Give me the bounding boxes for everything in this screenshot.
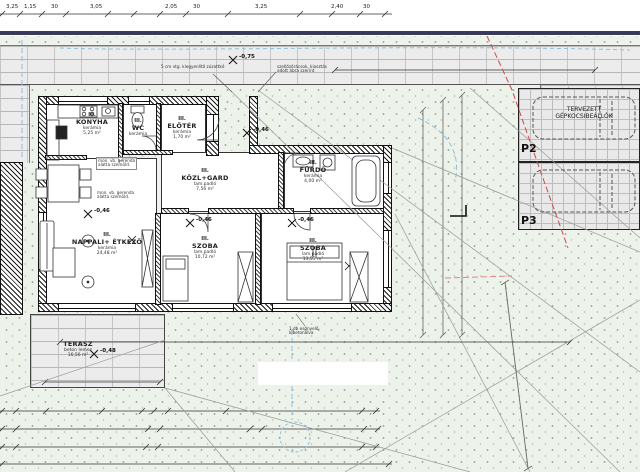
wall-top-rear [249,145,392,154]
note-beam-2: mon. vb. gerenda alatta szemöld. [96,190,135,201]
wall-furdo-left [278,152,284,212]
neighbor-wall [0,162,23,315]
window-furdo [383,162,392,194]
level-szoba2: -0,46 [298,217,314,223]
room-name: KONYHA [62,118,122,126]
note-line: adott ábra szerint [277,69,327,74]
room-name: KÖZL+GARD [170,174,240,182]
level-street: -0,75 [239,54,255,60]
wall-nappali-szoba1 [155,213,161,305]
label-szoba-2: III. SZOBA lam.padló 13,53 m² [288,238,338,262]
dim-top-6: 3,25 [255,4,267,10]
terrace-door [58,303,136,312]
window-szoba2 [272,303,352,312]
dim-top-3: 3,05 [90,4,102,10]
parking-title: TERVEZETT GÉPKOCSIBEÁLLÓK [528,106,640,120]
room-area: 13,53 m² [288,257,338,262]
stall-id-p2: P2 [521,142,537,155]
note-line: kibetonálva [289,331,320,336]
wall-konyha-bottom [45,155,87,160]
note-vents: szellőzőrácsok, kiosztás adott ábra szer… [276,64,328,75]
dim-top-2: 30 [51,4,58,10]
note-beam-1: mon. vb. gerenda alatta szemöld. [96,157,137,170]
room-name: ELŐTÉR [160,122,204,130]
room-floor: kerámia [122,132,154,137]
dim-top-4: 2,05 [165,4,177,10]
label-nappali-etkezo: III. NAPPALI+ ÉTKEZŐ kerámia 24,48 m² [57,232,157,256]
room-area: 7,56 m² [170,187,240,192]
label-terasz: TERASZ beton lemez 16,56 m² [48,340,108,358]
room-name: SZOBA [288,244,338,252]
floor-plan-canvas: 3,25 1,15 30 3,05 2,05 30 3,25 2,40 30 2… [0,0,640,472]
sidewalk-left-strip [0,85,30,163]
window-nappali-left [38,212,47,270]
wall-porch-right [249,96,258,148]
parking-title-line2: GÉPKOCSIBEÁLLÓK [528,113,640,120]
window-konyha [58,96,108,105]
room-area: 10,72 m² [180,255,230,260]
room-name: FÜRDŐ [288,166,338,174]
label-kozl-gard: III. KÖZL+GARD lam.padló 7,56 m² [170,168,240,192]
entry-porch [219,103,250,151]
dimension-chain-top [0,11,392,17]
room-name: WC [122,124,154,132]
wall-szoba1-szoba2 [255,213,261,305]
room-name: TERASZ [48,340,108,348]
dim-top-5: 30 [193,4,200,10]
label-wc: III. WC kerámia [122,118,154,137]
wall-kozl-szoba1-b [208,208,294,214]
level-nappali: -0,46 [94,208,110,214]
dim-top-0: 3,25 [6,4,18,10]
window-szoba1 [172,303,234,312]
label-eloter: III. ELŐTÉR kerámia 1,70 m² [160,116,204,140]
note-leveling: 5 cm vtg. kiegyenlítő zúzottkő [160,64,225,70]
label-furdo: III. FÜRDŐ kerámia 4,00 m² [288,160,338,184]
note-line: alatta szemöld. [97,195,134,200]
window-wc [128,96,150,105]
note-line: 5 cm vtg. kiegyenlítő zúzottkő [161,65,224,70]
entry-door-gap [206,114,219,142]
room-area: 16,56 m² [48,353,108,358]
label-szoba-1: III. SZOBA lam.padló 10,72 m² [180,236,230,260]
wall-kozl-szoba1-a [161,208,189,214]
room-name: NAPPALI+ ÉTKEZŐ [57,238,157,246]
label-konyha: III. KONYHA kerámia 5,25 m² [62,112,122,136]
note-drain: 1 db esőnyelő, kibetonálva [288,326,321,337]
dim-top-1: 1,15 [24,4,36,10]
road-edge-band [0,31,640,35]
level-porch: -0,46 [253,127,269,133]
wall-left [38,96,47,312]
stall-id-p3: P3 [521,214,537,227]
dim-top-8: 30 [363,4,370,10]
wall-wc-bottom [123,150,173,155]
wall-kozl-szoba2 [310,208,384,214]
room-area: 4,00 m² [288,179,338,184]
room-area: 1,70 m² [160,135,204,140]
window-szoba2-right [383,230,392,288]
room-area: 5,25 m² [62,131,122,136]
note-line: alatta szemöld. [98,163,135,168]
dim-top-7: 2,40 [331,4,343,10]
level-szoba1: -0,46 [196,217,212,223]
room-name: SZOBA [180,242,230,250]
parking-title-line1: TERVEZETT [528,106,640,113]
blank-redaction-box [258,362,388,385]
room-area: 24,48 m² [57,251,157,256]
